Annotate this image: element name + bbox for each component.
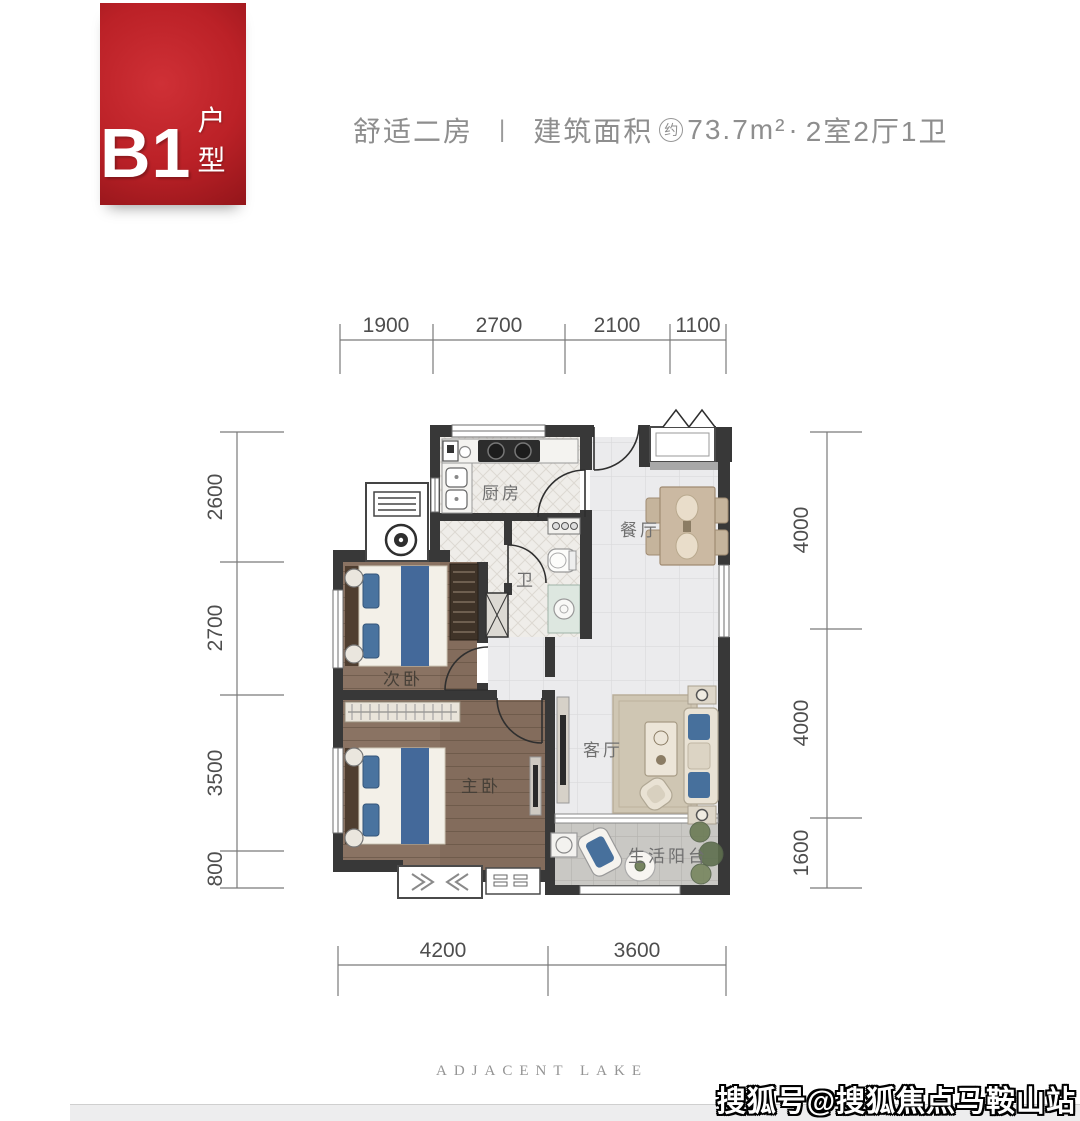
pillow [363, 574, 379, 608]
lamp-icon [697, 690, 708, 701]
dim-bottom-2: 3600 [614, 939, 661, 962]
pillow [363, 756, 379, 788]
floor-plan: 1900 2700 2100 1100 2600 2700 3500 800 4… [0, 0, 1080, 1121]
dim-top-3: 2100 [594, 314, 641, 337]
master-bay-window [398, 866, 482, 898]
ac-platform [366, 483, 428, 561]
dim-bottom-1: 4200 [420, 939, 467, 962]
bath-label: 卫 [516, 571, 536, 590]
entry-bay-window [650, 410, 718, 470]
watermark: 搜狐号@搜狐焦点马鞍山站 [717, 1078, 1076, 1120]
dim-chain-left [220, 432, 284, 888]
master-small-window [486, 868, 540, 894]
tv [533, 765, 538, 807]
lamp-icon [697, 810, 708, 821]
kitchen-window [452, 425, 545, 437]
dim-chain-right [810, 432, 862, 888]
dim-chain-bottom [338, 946, 726, 996]
sofa [684, 708, 718, 804]
dining-window [719, 565, 729, 637]
balcony-label: 生活阳台 [628, 847, 708, 866]
pillow [363, 804, 379, 836]
pillow [363, 624, 379, 658]
balcony-rail-window [580, 886, 680, 894]
dim-right-3: 1600 [790, 830, 813, 877]
second-bedroom-window [333, 590, 343, 668]
bed-runner [401, 748, 429, 844]
bed-runner [401, 566, 429, 666]
burner-icon [488, 443, 504, 459]
page: B1 户型 舒适二房 | 建筑面积 约 73.7m² · 2室2厅1卫 [0, 0, 1080, 1121]
dim-left-4: 800 [204, 851, 227, 886]
dim-left-3: 3500 [204, 750, 227, 797]
dim-left-1: 2600 [204, 474, 227, 521]
wardrobe [450, 564, 478, 640]
master-bedroom-window [333, 748, 343, 833]
kitchen-side-window [431, 478, 439, 512]
kitchen-label: 厨房 [482, 484, 522, 503]
tv [560, 715, 566, 785]
dim-top-2: 2700 [476, 314, 523, 337]
dim-right-1: 4000 [790, 507, 813, 554]
nightstand [345, 829, 363, 847]
closet [345, 702, 460, 722]
shower-drain [554, 599, 574, 619]
toilet [548, 549, 576, 572]
living-label: 客厅 [583, 741, 623, 760]
dim-right-2: 4000 [790, 700, 813, 747]
nightstand [345, 748, 363, 766]
dim-left-2: 2700 [204, 605, 227, 652]
dim-top-1: 1900 [363, 314, 410, 337]
dim-top-4: 1100 [675, 314, 720, 337]
nightstand [345, 569, 363, 587]
second-bedroom-label: 次卧 [383, 670, 423, 689]
burner-icon [515, 443, 531, 459]
coffee-table [645, 722, 677, 776]
duct-shaft [486, 593, 508, 637]
master-bedroom-label: 主卧 [461, 777, 501, 796]
brand-text: ADJACENT LAKE [436, 1063, 648, 1080]
nightstand [345, 645, 363, 663]
dining-label: 餐厅 [620, 521, 660, 540]
